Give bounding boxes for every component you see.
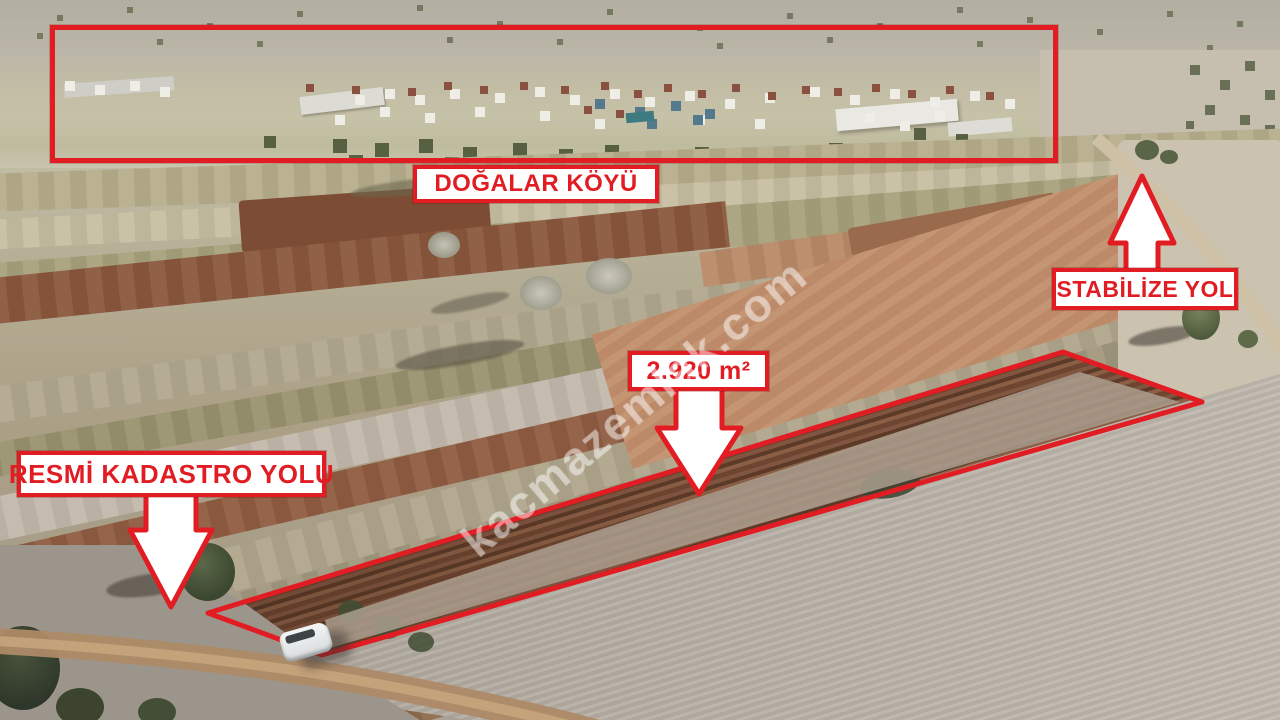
stabilized-road-label: STABİLİZE YOL — [1052, 268, 1238, 310]
vehicle-windshield — [285, 628, 316, 644]
arrow-up-icon — [1110, 176, 1174, 272]
aerial-photo: DOĞALAR KÖYÜ STABİLİZE YOL 2.920 m² RESM… — [0, 0, 1280, 720]
parcel-area-label: 2.920 m² — [628, 351, 769, 391]
cadastral-road-label: RESMİ KADASTRO YOLU — [17, 451, 326, 497]
arrow-down-icon — [130, 492, 212, 607]
arrow-down-icon — [657, 388, 741, 494]
village-label: DOĞALAR KÖYÜ — [413, 165, 659, 203]
parcel-light-band — [325, 372, 1180, 648]
village-highlight-box — [50, 25, 1058, 163]
